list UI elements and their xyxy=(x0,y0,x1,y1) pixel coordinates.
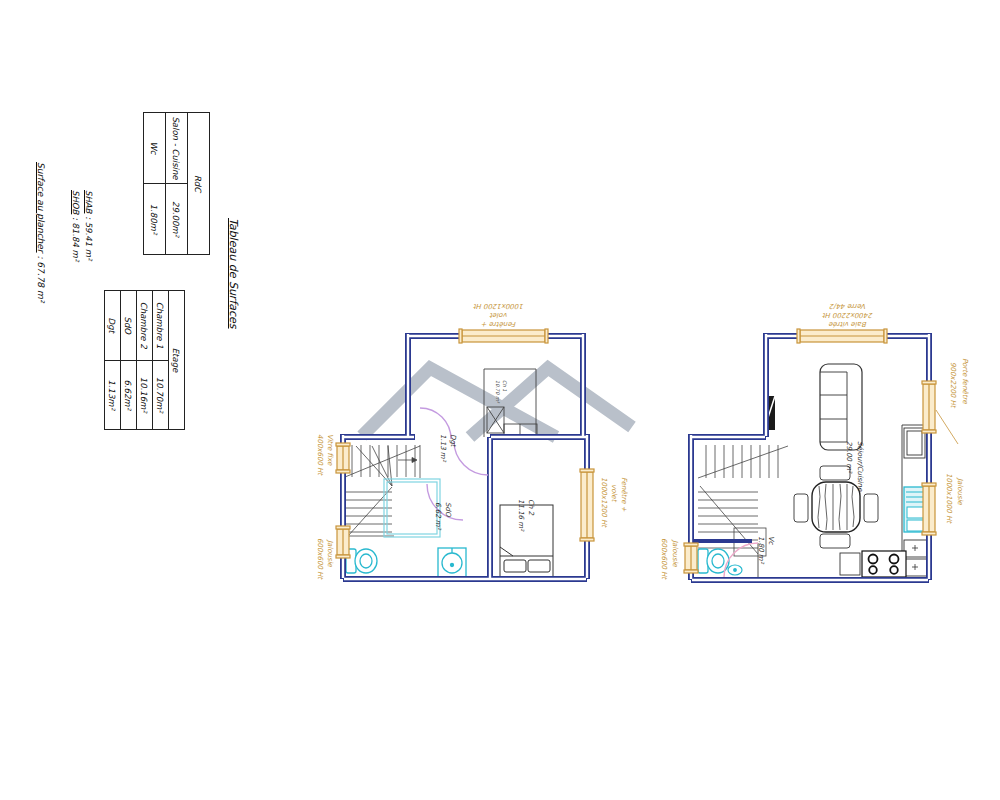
room-label-ch1: Ch 1 xyxy=(502,380,508,391)
bay-window-icon xyxy=(797,329,887,343)
annotation-line: Fenêtre + xyxy=(482,320,517,328)
annotation-louvre-left: Jalousie 600x600 Ht xyxy=(660,538,679,580)
room-label-sdo: SdO xyxy=(444,502,452,518)
room-area-sejour: 29.00 m² xyxy=(845,441,853,474)
annotation-line: 1000x1200 Ht xyxy=(473,302,524,310)
window-left-top-icon xyxy=(336,443,350,473)
annotation-line: 900x2200 Ht xyxy=(949,362,957,409)
annotation-window-left-top: Vitre fixe 400x600 Ht xyxy=(316,434,334,476)
sink-icon xyxy=(438,548,466,578)
annotation-line: 400x600 Ht xyxy=(316,434,324,476)
annotation-bay-window: Baie vitrée 2400x2200 Ht Verre 44/2 xyxy=(822,302,873,328)
annotation-line: Porte fenêtre xyxy=(961,358,969,404)
window-right-icon xyxy=(580,469,594,541)
plan-etage: Dgt 1.13 m² SdO 6.62 m² Ch 2 11.16 m² Ch… xyxy=(316,302,628,580)
annotation-line: 2400x2200 Ht xyxy=(822,311,873,319)
sofa-icon xyxy=(820,364,862,450)
annotation-line: Vitre fixe xyxy=(326,434,334,466)
dining-set-icon xyxy=(794,466,878,548)
toilet-icon xyxy=(346,549,377,573)
annotation-line: Jalousie xyxy=(326,539,334,568)
room-label-vc: Vc xyxy=(767,536,775,546)
annotation-window-top: Fenêtre + volet 1000x1200 Ht xyxy=(473,302,524,328)
annotation-louvre-right: Jalousie 1000x1000 Ht xyxy=(945,473,964,524)
room-area-vc: 1.80 m² xyxy=(757,536,765,565)
window-left-bottom-icon xyxy=(336,526,350,558)
stove-icon xyxy=(840,551,906,577)
window-top-icon xyxy=(459,329,548,343)
floorplan-sheet: Tableau de Surfaces RdC Salon - Cuisine … xyxy=(0,0,1000,800)
room-area-dgt: 1.13 m² xyxy=(439,434,447,463)
annotation-line: 1000x1200 Ht xyxy=(600,477,608,528)
door-arc xyxy=(454,441,488,475)
annotation-line: Jalousie xyxy=(956,477,964,506)
louvre-window-left-icon xyxy=(684,543,698,573)
bed-icon xyxy=(500,505,553,577)
shower-icon xyxy=(384,479,440,537)
annotation-window-left-bottom: Jalousie 600x600 Ht xyxy=(316,538,334,580)
annotation-line: 600x600 Ht xyxy=(660,538,668,580)
annotation-line: Baie vitrée xyxy=(828,320,866,328)
room-area-sdo: 6.62 m² xyxy=(434,502,442,531)
kitchen-cabinet xyxy=(904,540,927,576)
annotation-line: 1000x1000 Ht xyxy=(945,473,953,524)
room-area-ch2: 11.16 m² xyxy=(517,499,525,532)
room-label-dgt: Dgt xyxy=(449,434,457,448)
annotation-line: Fenêtre + xyxy=(620,477,628,512)
hand-basin-icon xyxy=(728,565,742,575)
annotation-window-right: Fenêtre + volet 1000x1200 Ht xyxy=(600,477,628,528)
room-area-ch1: 10.70 m² xyxy=(495,380,501,404)
rdc-wall-cores xyxy=(691,334,929,580)
annotation-line: Verre 44/2 xyxy=(829,302,866,310)
louvre-window-right-icon xyxy=(922,483,936,535)
floorplans-drawing: Dgt 1.13 m² SdO 6.62 m² Ch 2 11.16 m² Ch… xyxy=(0,0,1000,800)
annotation-line: volet xyxy=(610,484,618,503)
staircase-icon xyxy=(344,445,420,536)
room-label-sejour: Séjour/Cuisine xyxy=(856,441,864,492)
annotation-line: Jalousie xyxy=(671,539,679,568)
annotation-line: volet xyxy=(489,311,508,319)
annotation-line: 600x600 Ht xyxy=(316,538,324,580)
plan-rdc: Séjour/Cuisine 29.00 m² Vc 1.80 m² Baie … xyxy=(660,302,969,580)
annotation-door-window: Porte fenêtre 900x2200 Ht xyxy=(949,358,969,409)
room-label-ch2: Ch 2 xyxy=(527,499,535,516)
